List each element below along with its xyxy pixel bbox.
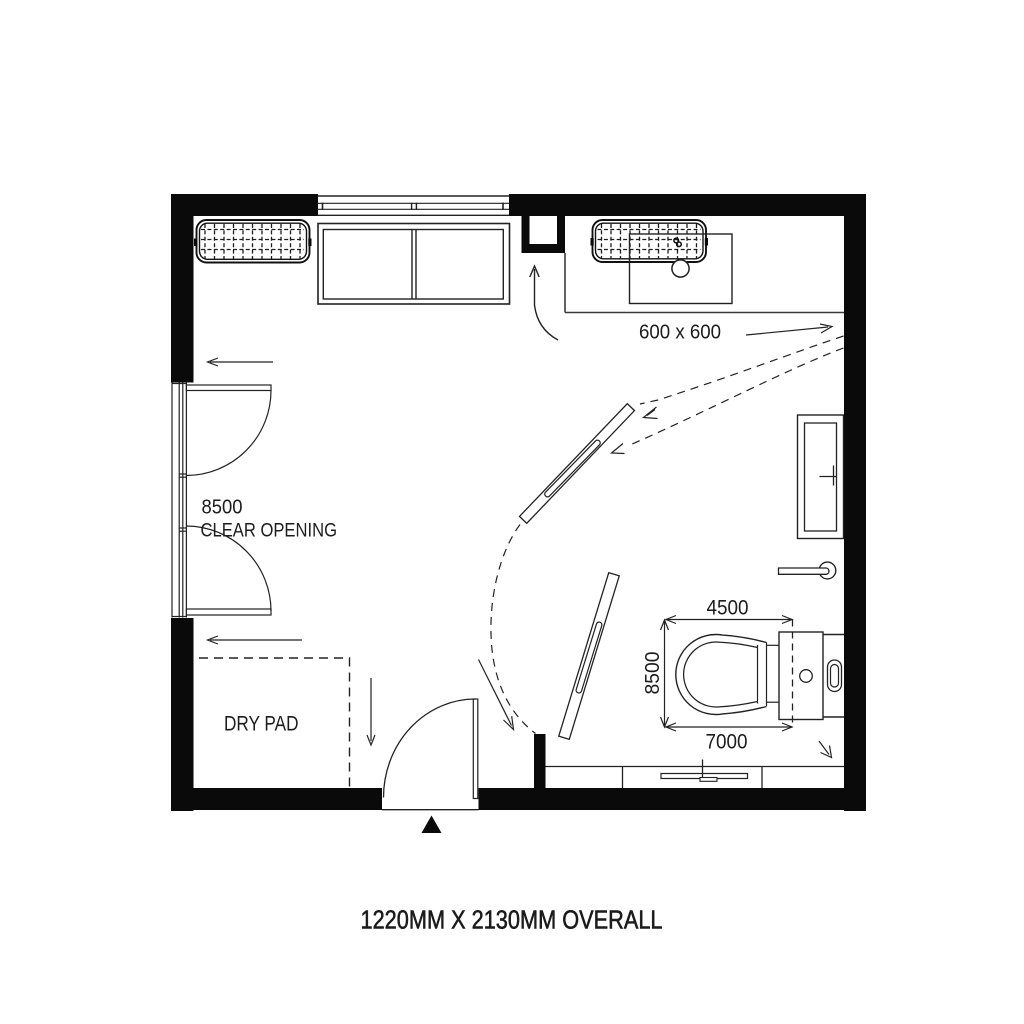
svg-text:8500: 8500 <box>202 497 243 519</box>
svg-text:8500: 8500 <box>642 652 664 695</box>
svg-text:DRY PAD: DRY PAD <box>224 713 299 736</box>
svg-text:7000: 7000 <box>706 731 748 754</box>
svg-text:600 x 600: 600 x 600 <box>639 321 721 344</box>
svg-text:4500: 4500 <box>707 597 749 620</box>
svg-text:1220MM X 2130MM OVERALL: 1220MM X 2130MM OVERALL <box>361 905 663 935</box>
svg-text:CLEAR OPENING: CLEAR OPENING <box>201 520 338 542</box>
